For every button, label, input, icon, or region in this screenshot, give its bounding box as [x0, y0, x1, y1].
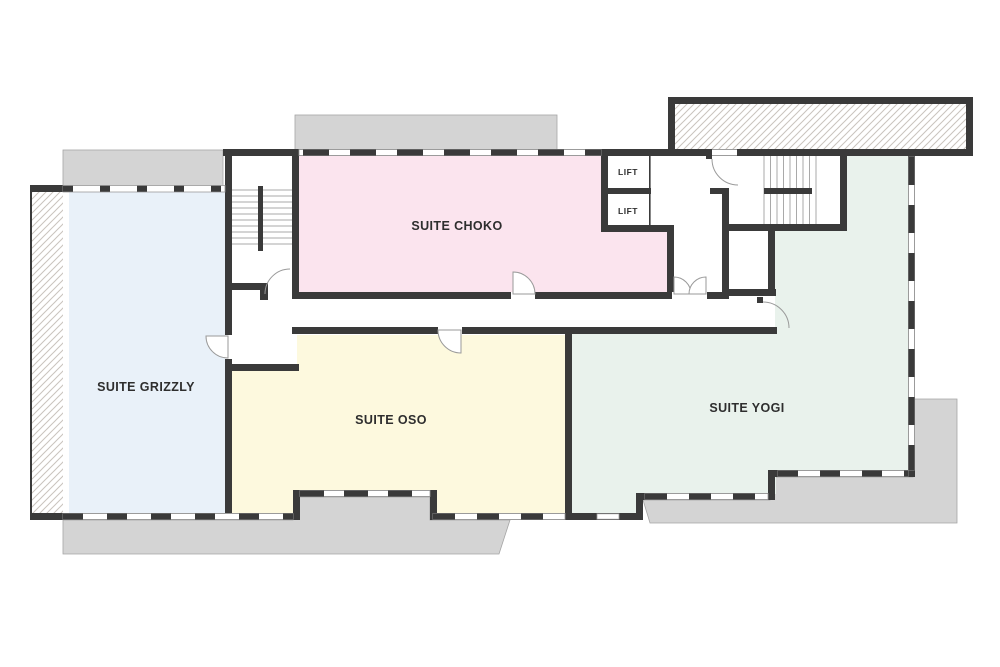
wall-terrace-door-stub [706, 149, 712, 159]
stairs-east-handrail [764, 188, 812, 194]
wall-stairs-east-bottom [722, 224, 847, 231]
stairs-west-handrail [258, 186, 263, 251]
wall-store-right [768, 231, 775, 296]
label-suite-choko: SUITE CHOKO [411, 219, 502, 233]
opening-terrace-door [712, 150, 737, 156]
terrace-top-center [295, 115, 557, 152]
terrace-top-left [63, 150, 223, 189]
floor-plan-svg: SUITE GRIZZLY SUITE CHOKO SUITE OSO SUIT… [0, 0, 1000, 667]
wall-roof-top [668, 97, 973, 104]
roof-hatch-top-right [674, 103, 968, 151]
wall-vestibule-bottom [227, 364, 299, 371]
wall-roof-left [668, 97, 675, 156]
wall-lift-divider [601, 188, 651, 194]
window-yogi-bottom-west [597, 514, 619, 519]
room-suite-grizzly [69, 192, 225, 513]
wall-oso-yogi-divider [565, 333, 572, 520]
window-wall-bottom-mid [433, 514, 565, 520]
wall-bay-step-west [293, 490, 300, 520]
window-wall-yogi-right [909, 157, 915, 470]
door-lobby-stairs [712, 159, 738, 185]
wall-choko-right [667, 225, 674, 299]
label-lift-1: LIFT [618, 167, 638, 177]
wall-stairs-east-right [840, 149, 847, 231]
wall-store-bottom [722, 289, 776, 296]
wall-grizzly-right [225, 149, 232, 520]
window-wall-choko-top [299, 150, 601, 156]
hatch-strip-left [32, 192, 63, 513]
label-suite-grizzly: SUITE GRIZZLY [97, 380, 195, 394]
floor-plan-page: SUITE GRIZZLY SUITE CHOKO SUITE OSO SUIT… [0, 0, 1000, 667]
wall-grizzly-top-corner [31, 185, 63, 192]
window-wall-grizzly-top [63, 186, 225, 193]
door-stairs-west [265, 269, 290, 294]
label-suite-yogi: SUITE YOGI [709, 401, 784, 415]
window-wall-bottom-west [63, 514, 293, 520]
label-suite-oso: SUITE OSO [355, 413, 427, 427]
wall-corridor-east-stub [757, 297, 763, 303]
wall-choko-bottom [292, 292, 729, 299]
wall-corridor-bottom [292, 327, 777, 334]
wall-site-left-line [30, 185, 32, 520]
window-wall-yogi-bottom-east [778, 471, 908, 477]
wall-lift-bottom [601, 225, 668, 232]
wall-roof-right [966, 97, 973, 156]
door-double-left [674, 277, 691, 294]
window-wall-yogi-mid [645, 494, 768, 500]
wall-choko-left [292, 149, 299, 298]
door-double-right [689, 277, 706, 294]
label-lift-2: LIFT [618, 206, 638, 216]
wall-lift-front-line [649, 152, 651, 226]
window-wall-bay [300, 491, 430, 497]
wall-store-left [722, 188, 729, 296]
